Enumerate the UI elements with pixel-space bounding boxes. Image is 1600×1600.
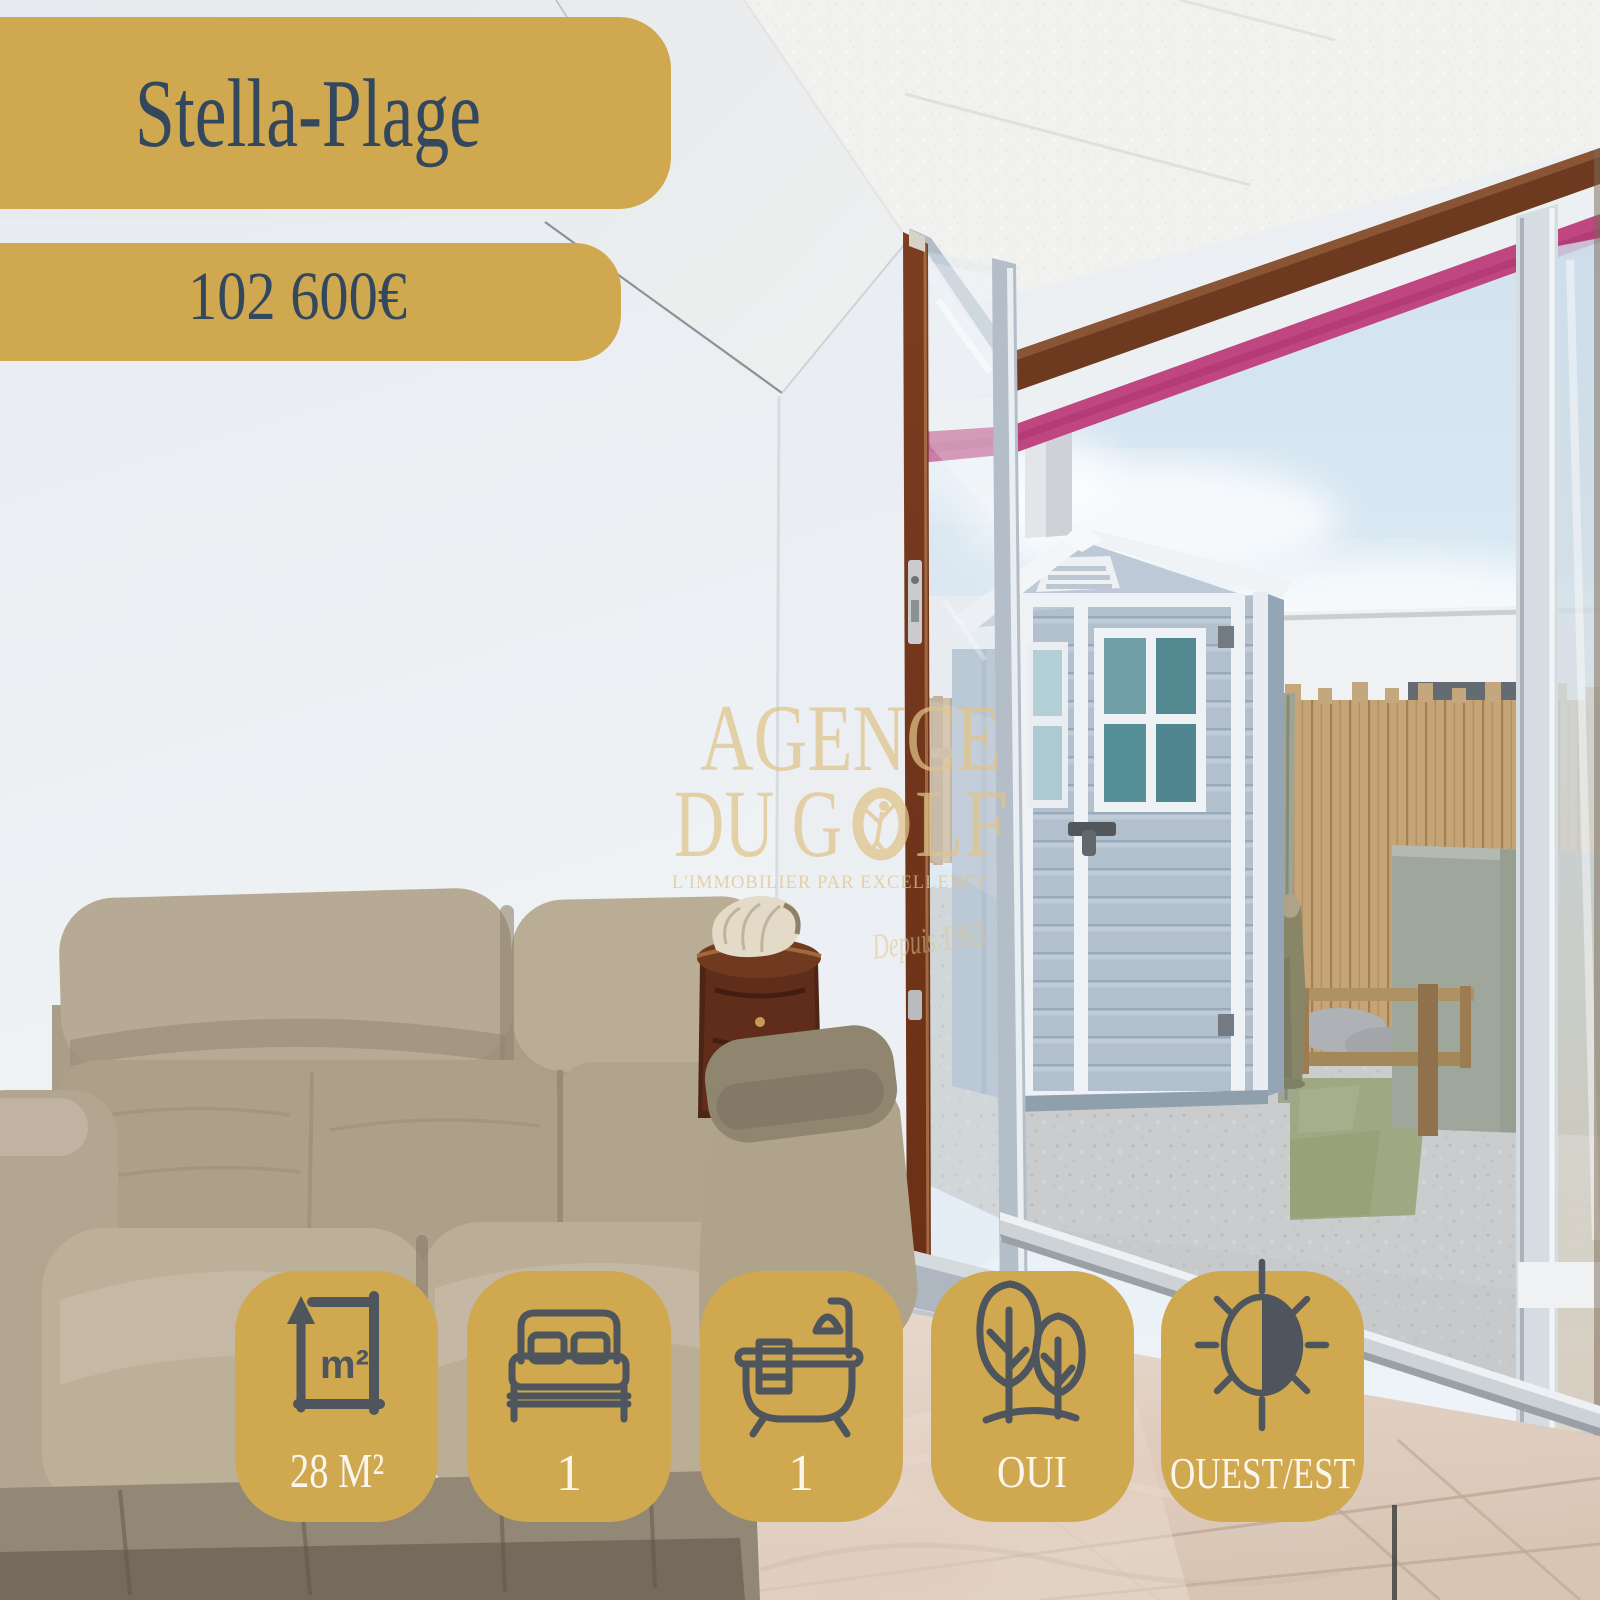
- svg-text:OUI: OUI: [997, 1446, 1067, 1497]
- svg-text:m²: m²: [320, 1343, 369, 1387]
- svg-text:LF: LF: [915, 770, 1008, 877]
- svg-text:1: 1: [556, 1445, 582, 1502]
- svg-text:1: 1: [788, 1445, 814, 1502]
- svg-text:28 M²: 28 M²: [290, 1443, 384, 1498]
- svg-text:L'IMMOBILIER PAR EXCELLENCE: L'IMMOBILIER PAR EXCELLENCE: [672, 873, 995, 893]
- svg-text:Stella-Plage: Stella-Plage: [135, 60, 481, 168]
- svg-text:DU G: DU G: [674, 770, 842, 877]
- svg-text:OUEST/EST: OUEST/EST: [1170, 1449, 1355, 1498]
- svg-text:102 600€: 102 600€: [188, 258, 407, 334]
